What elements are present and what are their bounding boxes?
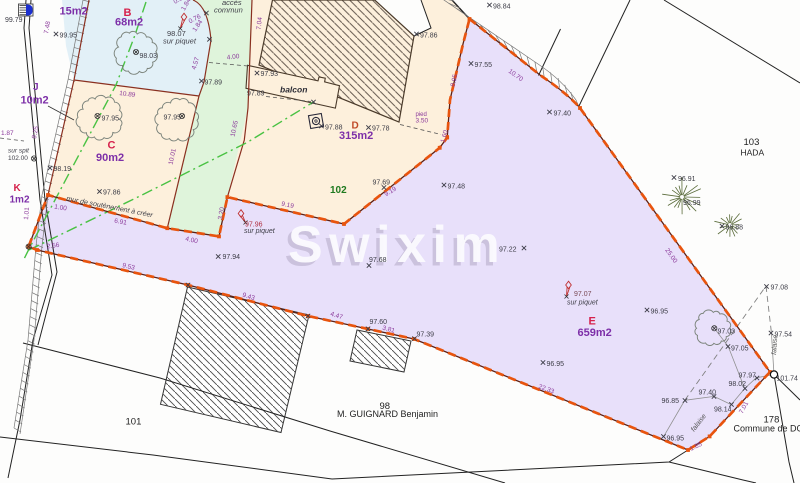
svg-text:falaise: falaise (771, 334, 779, 355)
svg-text:97.95: 97.95 (102, 116, 120, 123)
svg-text:97.07: 97.07 (574, 291, 592, 298)
svg-text:J: J (33, 82, 39, 93)
svg-text:pied: pied (416, 112, 427, 118)
svg-text:97.08: 97.08 (771, 285, 789, 292)
svg-text:15m2: 15m2 (60, 6, 88, 18)
svg-text:68m2: 68m2 (115, 17, 143, 29)
svg-text:98.84: 98.84 (493, 4, 511, 11)
svg-text:sur piquet: sur piquet (567, 300, 599, 307)
svg-text:98.19: 98.19 (54, 166, 72, 173)
svg-text:K: K (14, 183, 22, 194)
svg-text:102.00: 102.00 (8, 155, 28, 162)
svg-text:97.97: 97.97 (739, 373, 757, 380)
svg-text:101: 101 (126, 417, 142, 428)
svg-text:102: 102 (330, 185, 347, 196)
svg-text:97.94: 97.94 (223, 254, 241, 261)
svg-text:97.69: 97.69 (373, 180, 391, 187)
svg-text:C: C (108, 140, 116, 152)
svg-text:99.95: 99.95 (60, 33, 78, 40)
svg-text:97.68: 97.68 (369, 257, 387, 264)
svg-text:97.55: 97.55 (475, 62, 493, 69)
svg-text:1.87: 1.87 (1, 130, 14, 137)
svg-text:97.86: 97.86 (103, 190, 121, 197)
svg-text:4.00: 4.00 (226, 53, 240, 61)
svg-text:3.50: 3.50 (416, 118, 429, 125)
svg-text:97.40: 97.40 (699, 390, 717, 397)
svg-text:1.01: 1.01 (23, 207, 31, 221)
svg-text:97.89: 97.89 (247, 91, 265, 98)
svg-text:96.95: 96.95 (651, 309, 669, 316)
svg-text:98.03: 98.03 (140, 53, 158, 60)
svg-text:101.74: 101.74 (777, 376, 799, 383)
svg-text:10m2: 10m2 (21, 95, 49, 107)
svg-text:97.48: 97.48 (448, 184, 466, 191)
svg-text:M. GUIGNARD Benjamin: M. GUIGNARD Benjamin (337, 409, 438, 419)
svg-text:97.95: 97.95 (164, 115, 182, 122)
svg-text:659m2: 659m2 (578, 327, 612, 339)
svg-text:balcon: balcon (280, 85, 307, 95)
svg-text:97.86: 97.86 (420, 33, 438, 40)
svg-text:98.14: 98.14 (714, 407, 732, 414)
svg-text:HADA: HADA (741, 148, 765, 158)
svg-text:97.22: 97.22 (499, 247, 517, 254)
svg-text:98.02: 98.02 (729, 381, 747, 388)
svg-text:99.79: 99.79 (5, 17, 23, 24)
svg-text:97.40: 97.40 (554, 111, 572, 118)
svg-text:97.05: 97.05 (731, 346, 749, 353)
svg-text:97.78: 97.78 (372, 126, 390, 133)
svg-text:315m2: 315m2 (339, 130, 373, 142)
svg-text:97.93: 97.93 (261, 71, 279, 78)
svg-text:Swixim: Swixim (288, 216, 506, 274)
svg-text:commun: commun (214, 6, 243, 15)
svg-text:96.95: 96.95 (667, 436, 685, 443)
svg-text:90m2: 90m2 (96, 152, 124, 164)
svg-text:1m2: 1m2 (10, 195, 30, 206)
svg-text:sur piquet: sur piquet (163, 37, 197, 46)
svg-text:97.03: 97.03 (718, 329, 736, 336)
svg-text:96.95: 96.95 (547, 361, 565, 368)
svg-text:97.39: 97.39 (417, 332, 435, 339)
svg-text:E: E (589, 316, 596, 328)
svg-text:96.99: 96.99 (683, 200, 701, 207)
svg-text:Commune de DO: Commune de DO (734, 424, 800, 434)
svg-text:sur spit: sur spit (8, 148, 30, 155)
svg-text:97.89: 97.89 (205, 80, 223, 87)
svg-text:96.88: 96.88 (726, 225, 744, 232)
svg-text:sur piquet: sur piquet (244, 228, 276, 235)
svg-text:103: 103 (744, 137, 760, 148)
svg-text:96.91: 96.91 (678, 176, 696, 183)
svg-text:96.85: 96.85 (662, 398, 680, 405)
